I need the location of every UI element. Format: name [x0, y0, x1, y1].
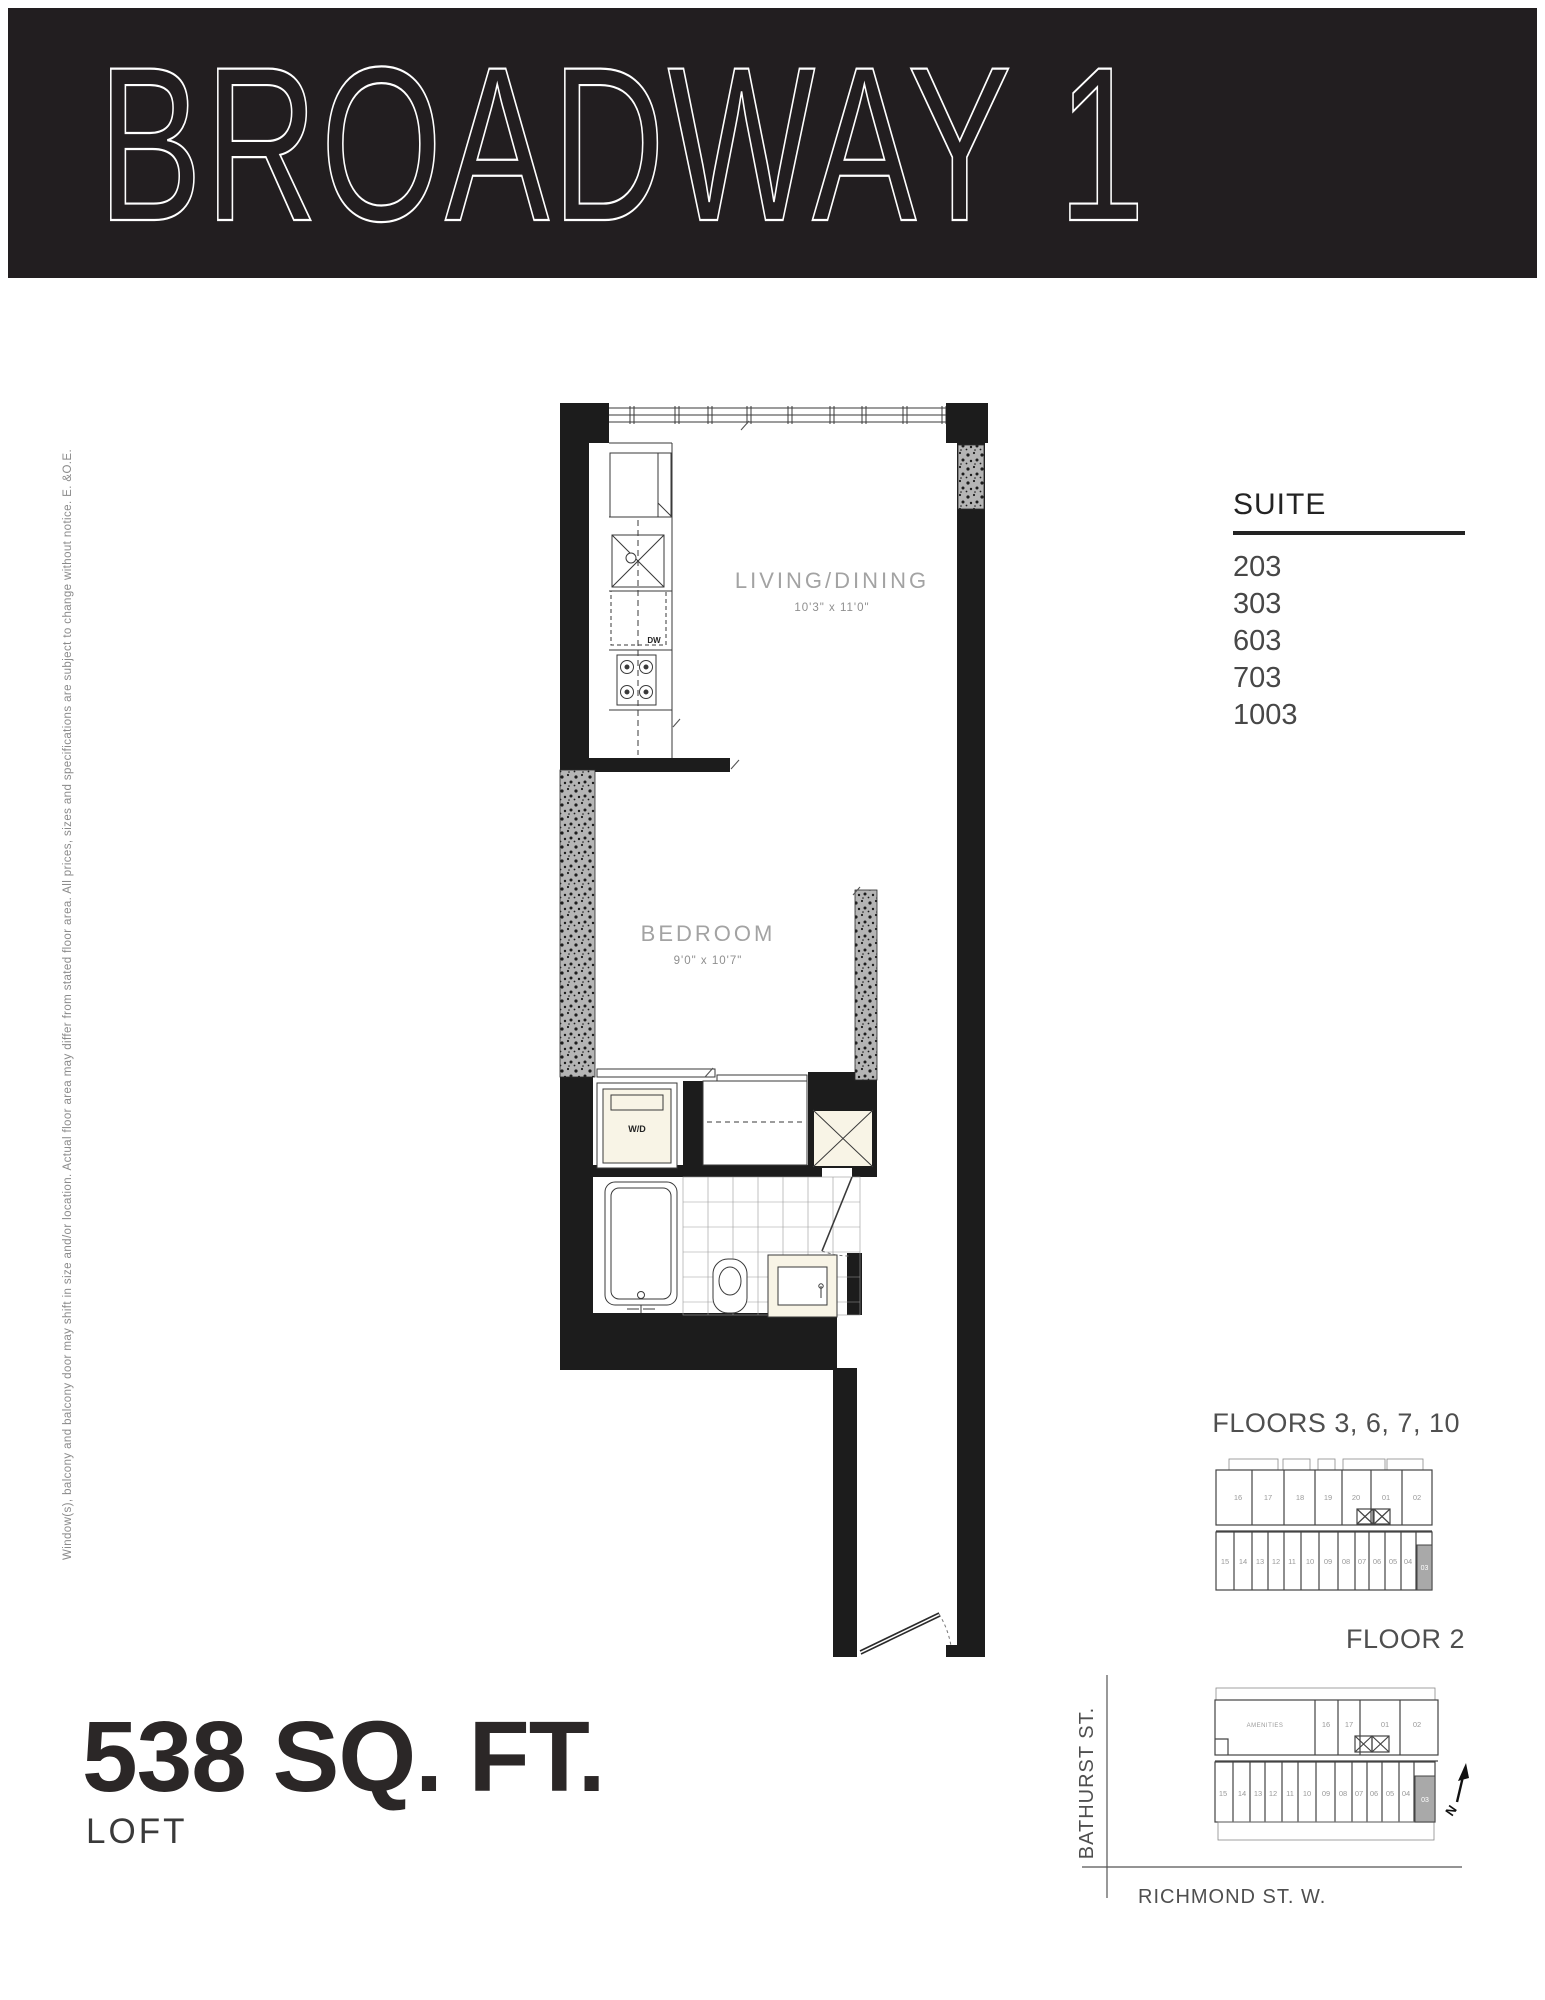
suite-rule: [1233, 531, 1465, 535]
keyplan-floors-3-6-7-10: 16 17 18 19 20 01 02 15 14 13 12 11 10 0…: [1214, 1452, 1436, 1594]
svg-text:15: 15: [1221, 1557, 1229, 1566]
suite-heading: SUITE: [1233, 489, 1465, 521]
svg-text:05: 05: [1389, 1557, 1397, 1566]
svg-text:19: 19: [1324, 1493, 1332, 1502]
keyplan1-balconies: [1229, 1459, 1423, 1470]
street-label-richmond: RICHMOND ST. W.: [1138, 1886, 1326, 1908]
svg-text:16: 16: [1234, 1493, 1242, 1502]
street-label-bathurst: BATHURST ST.: [1076, 1707, 1098, 1859]
north-label: N: [1442, 1802, 1460, 1818]
svg-text:17: 17: [1264, 1493, 1272, 1502]
window-wall: [588, 406, 946, 424]
toilet: [713, 1259, 747, 1313]
svg-text:20: 20: [1352, 1493, 1360, 1502]
suite-number: 603: [1233, 623, 1465, 660]
room-dim-bedroom: 9'0" x 10'7": [674, 955, 743, 967]
project-title: BROADWAY 1: [98, 34, 1148, 254]
suite-number: 303: [1233, 586, 1465, 623]
svg-text:01: 01: [1382, 1493, 1390, 1502]
closet: [703, 1081, 807, 1165]
svg-text:06: 06: [1373, 1557, 1381, 1566]
street-lines: [1082, 1675, 1462, 1898]
svg-text:18: 18: [1296, 1493, 1304, 1502]
svg-text:04: 04: [1404, 1557, 1412, 1566]
keyplan1-title: FLOORS 3, 6, 7, 10: [1148, 1408, 1460, 1439]
floor-plan: DW W/D: [545, 395, 990, 1670]
unit-type: LOFT: [86, 1812, 187, 1852]
wardrobe-sliders: [597, 1069, 807, 1082]
bath-door: [822, 1177, 852, 1256]
kitchen-counter: [609, 443, 672, 758]
dishwasher-label: DW: [647, 636, 661, 645]
svg-text:07: 07: [1358, 1557, 1366, 1566]
shaft: [813, 1110, 873, 1167]
vanity: [768, 1255, 837, 1317]
room-label-bedroom: BEDROOM: [641, 921, 776, 946]
svg-text:08: 08: [1342, 1557, 1350, 1566]
disclaimer-text: Window(s), balcony and balcony door may …: [62, 485, 74, 1560]
bathtub: [605, 1182, 677, 1305]
svg-text:13: 13: [1256, 1557, 1264, 1566]
floorplan-sheet: { "banner": { "title": "BROADWAY 1" }, "…: [0, 0, 1545, 2000]
room-dim-living-dining: 10'3" x 11'0": [794, 602, 869, 614]
svg-text:10: 10: [1306, 1557, 1314, 1566]
keyplan1-highlighted-label: 03: [1421, 1565, 1429, 1572]
suite-panel: SUITE 203 303 603 703 1003: [1233, 489, 1465, 734]
dimension-ticks: [673, 421, 860, 1077]
room-label-living-dining: LIVING/DINING: [735, 568, 929, 593]
svg-text:02: 02: [1413, 1493, 1421, 1502]
suite-number: 703: [1233, 660, 1465, 697]
unit-area: 538 SQ. FT.: [82, 1700, 605, 1815]
washer-dryer-label: W/D: [628, 1124, 646, 1134]
entry-door: [860, 1613, 951, 1654]
svg-text:11: 11: [1288, 1557, 1296, 1566]
suite-list: 203 303 603 703 1003: [1233, 549, 1465, 734]
north-arrow-icon: N: [1442, 1763, 1469, 1819]
header-banner: BROADWAY 1: [8, 8, 1537, 278]
street-map: BATHURST ST. RICHMOND ST. W. N: [1075, 1620, 1495, 1920]
bathroom: [605, 1177, 860, 1317]
suite-number: 1003: [1233, 697, 1465, 734]
suite-number: 203: [1233, 549, 1465, 586]
keyplan1-units: [1216, 1470, 1432, 1590]
svg-text:09: 09: [1324, 1557, 1332, 1566]
svg-text:14: 14: [1239, 1557, 1247, 1566]
svg-text:12: 12: [1272, 1557, 1280, 1566]
